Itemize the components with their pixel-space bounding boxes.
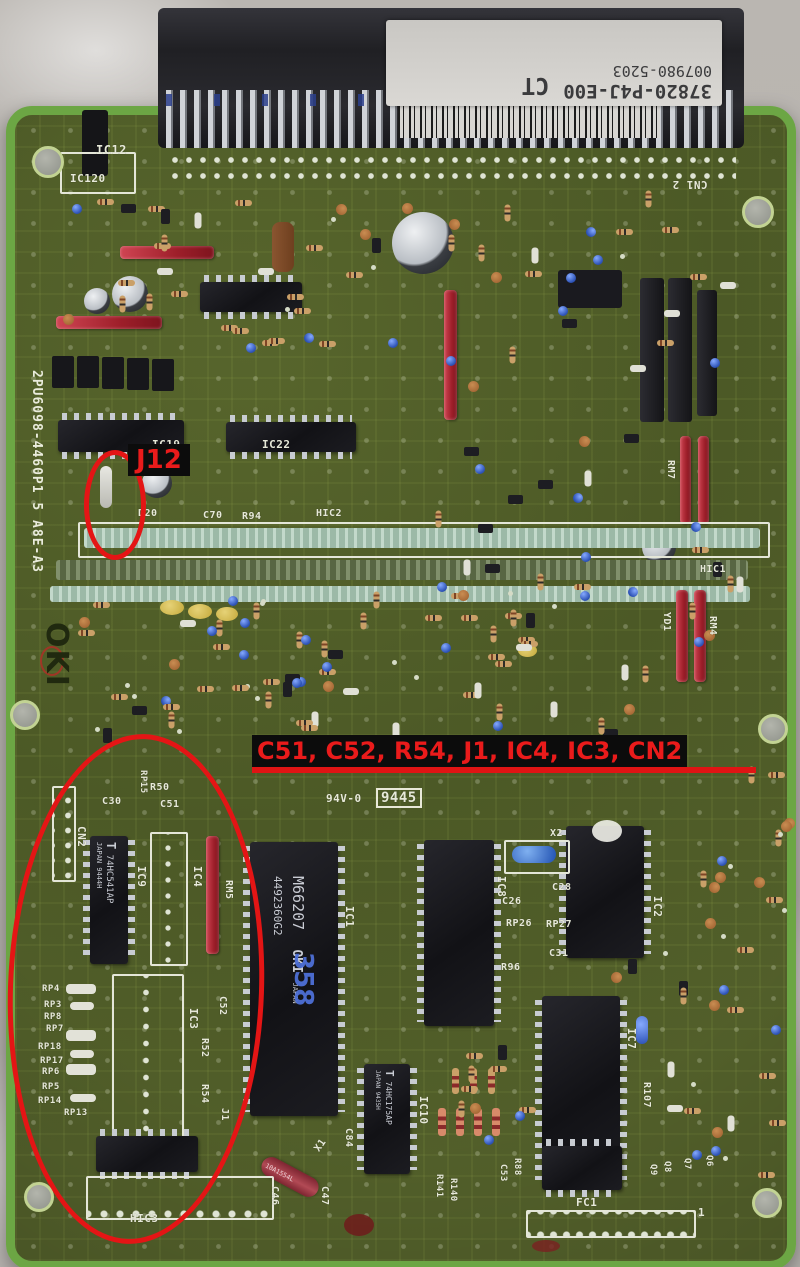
component (463, 560, 470, 576)
component (538, 480, 553, 489)
pcb-photo: 37820-P4J-E00 007980-5203 CT IC12 IC120 … (0, 0, 800, 1267)
ic10-brand: T (383, 1070, 396, 1077)
component (95, 727, 100, 732)
component (360, 612, 366, 629)
component (194, 213, 201, 229)
component (161, 209, 170, 224)
silk-c26: C26 (502, 896, 522, 907)
component (692, 547, 709, 553)
component (667, 1105, 683, 1112)
component (574, 584, 591, 590)
component (436, 511, 442, 528)
component (516, 644, 532, 651)
silk-r88: R88 (512, 1158, 522, 1176)
component (771, 1025, 781, 1035)
component (437, 582, 447, 592)
component (643, 666, 649, 683)
silk-fc1-pin1: 1 (698, 1206, 705, 1219)
component (694, 637, 704, 647)
component (388, 338, 398, 348)
component (717, 856, 727, 866)
component (97, 199, 114, 205)
component (509, 346, 515, 363)
component (664, 310, 680, 317)
component (232, 685, 249, 691)
silk-r107: R107 (641, 1082, 652, 1108)
component (781, 821, 792, 832)
component (255, 696, 260, 701)
component (611, 972, 622, 983)
component (624, 434, 639, 443)
mounting-hole (32, 146, 64, 178)
component (624, 704, 635, 715)
silk-ic22: IC22 (262, 438, 291, 451)
resistor (488, 1068, 495, 1094)
component (343, 688, 359, 695)
ic1-handwritten-mark: 358 (288, 952, 318, 1006)
silk-x2: X2 (550, 828, 563, 839)
component (414, 675, 419, 680)
component (562, 319, 577, 328)
component (235, 200, 252, 206)
solder-pad-rows (168, 152, 736, 186)
component (723, 1156, 728, 1161)
silk-r141: R141 (434, 1174, 444, 1198)
component (581, 552, 591, 562)
component (493, 721, 503, 731)
component (322, 662, 332, 672)
component (727, 575, 733, 592)
component (469, 1066, 475, 1083)
silk-ic8: IC8 (495, 876, 508, 897)
component (466, 1053, 483, 1059)
silk-c47: C47 (319, 1186, 330, 1206)
silk-94v0: 94V-0 (326, 792, 362, 805)
silk-r140: R140 (448, 1178, 458, 1202)
component (700, 871, 706, 888)
component (306, 245, 323, 251)
hic1-module (56, 560, 748, 580)
silk-ic7: IC7 (625, 1028, 638, 1049)
transistor (127, 358, 149, 390)
resistor-network-rm7 (680, 436, 691, 524)
annotation-j12-label: J12 (128, 444, 190, 476)
component (425, 615, 442, 621)
component (458, 1101, 464, 1118)
power-component (697, 290, 717, 416)
silk-rm4: RM4 (707, 616, 718, 636)
component (121, 204, 136, 213)
component (709, 882, 720, 893)
component (690, 274, 707, 280)
component (207, 626, 217, 636)
component (171, 291, 188, 297)
component (146, 294, 152, 311)
component (782, 908, 787, 913)
component (668, 1062, 675, 1078)
resistor (438, 1108, 446, 1136)
component (768, 772, 785, 778)
dip-ic (542, 1146, 622, 1190)
sticker-part-number: 37820-P4J-E00 (563, 80, 712, 102)
component (663, 951, 668, 956)
component (508, 495, 523, 504)
component (737, 947, 754, 953)
component (573, 493, 583, 503)
component (258, 268, 274, 275)
component (769, 1120, 786, 1126)
component (736, 576, 743, 592)
component (360, 229, 371, 240)
component (468, 381, 479, 392)
silk-c53: C53 (498, 1164, 508, 1182)
component (103, 728, 112, 743)
component (586, 227, 596, 237)
component (246, 343, 256, 353)
silk-hic1: HIC1 (700, 564, 726, 575)
electrolytic-cap-large (392, 212, 454, 274)
component (458, 590, 469, 601)
transistor (77, 356, 99, 388)
mounting-hole (758, 714, 788, 744)
component (292, 678, 302, 688)
date-code-stamp: 9445 (376, 788, 422, 808)
component (72, 204, 82, 214)
stain (344, 1214, 374, 1236)
silk-c70: C70 (203, 510, 223, 521)
component (301, 635, 311, 645)
component (681, 988, 687, 1005)
resistor (492, 1108, 500, 1136)
dip-ic2-chip (566, 826, 644, 958)
component (662, 227, 679, 233)
mounting-hole (752, 1188, 782, 1218)
component (268, 338, 285, 344)
component (372, 238, 381, 253)
stain (532, 1240, 560, 1252)
power-component (640, 278, 664, 422)
silk-r96: R96 (501, 962, 521, 973)
silk-q6: Q6 (704, 1155, 714, 1167)
component (709, 1000, 720, 1011)
component (550, 702, 557, 718)
component (157, 268, 173, 275)
component (163, 704, 180, 710)
component (485, 564, 500, 573)
annotation-underline (252, 767, 756, 773)
component (584, 471, 591, 487)
component (441, 643, 451, 653)
silk-q7: Q7 (682, 1158, 692, 1170)
component (287, 294, 304, 300)
component (710, 358, 720, 368)
component (168, 711, 174, 728)
hic1-bar (50, 586, 750, 602)
component (232, 328, 249, 334)
x2-crystal (512, 846, 556, 863)
component (579, 436, 590, 447)
oki-logo: OKI (39, 622, 74, 688)
component (508, 591, 513, 596)
component (646, 191, 652, 208)
component (558, 306, 568, 316)
silk-ic2: IC2 (651, 896, 664, 917)
tantalum-cap (160, 600, 184, 615)
ic10-lot: JAPAN 9435H (374, 1070, 381, 1110)
component (119, 295, 125, 312)
component (488, 654, 505, 660)
electrolytic-cap (84, 288, 110, 314)
component (301, 725, 318, 731)
silk-c31: C31 (549, 948, 569, 959)
silk-q8: Q8 (662, 1161, 672, 1173)
component (720, 282, 736, 289)
paste-blob (592, 820, 622, 842)
component (239, 650, 249, 660)
component (111, 694, 128, 700)
dip-ic22 (226, 422, 356, 452)
silk-rp26: RP26 (506, 918, 532, 929)
silk-c84: C84 (343, 1128, 354, 1148)
component (630, 365, 646, 372)
transistor (102, 357, 124, 389)
component (531, 247, 538, 263)
silk-hic2: HIC2 (316, 508, 342, 519)
sticker-serial: 007980-5203 (563, 62, 712, 80)
component (402, 203, 413, 214)
component (657, 340, 674, 346)
silk-ic10: IC10 (417, 1096, 430, 1125)
component (598, 718, 604, 735)
part-label-sticker: 37820-P4J-E00 007980-5203 CT (386, 20, 722, 106)
component (63, 314, 74, 325)
component (689, 603, 695, 620)
component (93, 602, 110, 608)
transistor (52, 356, 74, 388)
component (461, 615, 478, 621)
component (162, 235, 168, 252)
component (263, 679, 280, 685)
component (217, 620, 223, 637)
component (228, 596, 238, 606)
silk-c28: C28 (552, 882, 572, 893)
ic1-lot: 4492360G2 (271, 876, 284, 936)
silk-rm7: RM7 (665, 460, 676, 480)
component (495, 661, 512, 667)
component (78, 630, 95, 636)
component (328, 650, 343, 659)
component (728, 1116, 735, 1132)
component (294, 308, 311, 314)
component (118, 280, 135, 286)
silk-ic12: IC12 (96, 143, 127, 157)
power-component (668, 278, 692, 422)
component (515, 1111, 525, 1121)
silk-rp27: RP27 (546, 919, 572, 930)
component (240, 618, 250, 628)
component (580, 591, 590, 601)
component (285, 307, 290, 312)
component (616, 229, 633, 235)
component (180, 620, 196, 627)
silk-cn1: CN1 2 (672, 178, 708, 191)
silk-q9: Q9 (648, 1164, 658, 1176)
silk-fc1: FC1 (576, 1196, 597, 1209)
component (684, 1108, 701, 1114)
component (169, 659, 180, 670)
component (504, 205, 510, 222)
component (552, 604, 557, 609)
component (346, 272, 363, 278)
component (490, 1066, 507, 1072)
component (132, 694, 137, 699)
component (265, 692, 271, 709)
resistor-network (698, 436, 709, 524)
silk-ic120: IC120 (70, 172, 106, 185)
component (478, 244, 484, 261)
mounting-hole (742, 196, 774, 228)
component (132, 706, 147, 715)
resistor-network-yd1 (676, 590, 688, 682)
component (464, 447, 479, 456)
component (758, 1172, 775, 1178)
component (721, 934, 726, 939)
component (283, 682, 292, 697)
component (620, 254, 625, 259)
component (491, 626, 497, 643)
component (628, 587, 638, 597)
component (197, 686, 214, 692)
tantalum-cap (188, 604, 212, 619)
component (323, 681, 334, 692)
component (705, 918, 716, 929)
resistor (452, 1068, 459, 1094)
component (392, 660, 397, 665)
component (470, 1103, 481, 1114)
silk-r94: R94 (242, 511, 262, 522)
component (622, 664, 629, 680)
sticker-mark: CT (522, 72, 550, 98)
component (319, 341, 336, 347)
component (478, 524, 493, 533)
component (79, 617, 90, 628)
ic10-chip: T 74HC175AP JAPAN 9435H (364, 1064, 410, 1174)
annotation-banner: C51, C52, R54, J1, IC4, IC3, CN2 (252, 735, 687, 767)
component (525, 271, 542, 277)
silk-c46: C46 (269, 1186, 280, 1206)
ic10-part: 74HC175AP (384, 1081, 393, 1124)
board-id-text: 2PU6098-4460P1 5 A8E-A3 (29, 370, 44, 573)
component (496, 703, 502, 720)
ic1-part: M66207 (289, 876, 307, 930)
component (474, 683, 481, 699)
component (566, 273, 576, 283)
component (691, 1082, 696, 1087)
component (766, 897, 783, 903)
transistor (152, 359, 174, 391)
component (719, 985, 729, 995)
component (461, 1086, 478, 1092)
component (498, 1045, 507, 1060)
component (537, 574, 543, 591)
component (484, 1135, 494, 1145)
component (593, 255, 603, 265)
component (448, 234, 454, 251)
component (510, 610, 516, 627)
hic2-module (84, 528, 760, 548)
resistor-network (444, 290, 457, 420)
component (491, 272, 502, 283)
silk-ic1: IC1 (343, 906, 356, 927)
component (373, 592, 379, 609)
component (446, 356, 456, 366)
component (692, 1150, 702, 1160)
component (322, 641, 328, 658)
cylinder-cap (272, 222, 294, 272)
component (628, 959, 637, 974)
component (728, 864, 733, 869)
mounting-hole (10, 700, 40, 730)
component (712, 1127, 723, 1138)
component (253, 602, 259, 619)
component (125, 683, 130, 688)
component (213, 644, 230, 650)
silk-yd1: YD1 (661, 612, 672, 632)
component (727, 1007, 744, 1013)
component (475, 464, 485, 474)
component (759, 1073, 776, 1079)
dip-ic (424, 840, 494, 1026)
component (177, 729, 182, 734)
component (526, 613, 535, 628)
fc1-footprint (526, 1210, 696, 1238)
